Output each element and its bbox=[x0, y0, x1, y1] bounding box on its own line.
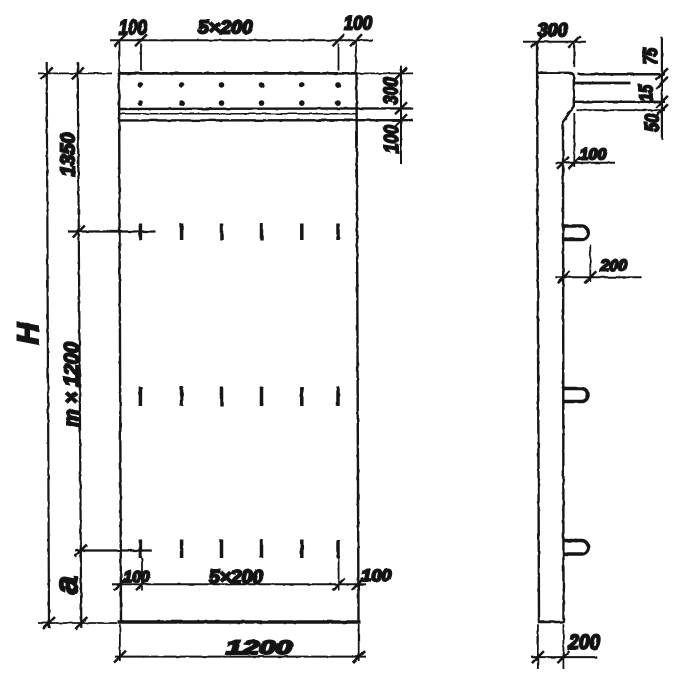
svg-text:200: 200 bbox=[599, 257, 628, 275]
svg-text:a: a bbox=[48, 576, 85, 594]
svg-text:1350: 1350 bbox=[58, 133, 80, 177]
svg-text:5×200: 5×200 bbox=[209, 567, 263, 587]
svg-text:300: 300 bbox=[538, 21, 568, 42]
svg-text:5×200: 5×200 bbox=[198, 18, 253, 38]
svg-text:100: 100 bbox=[580, 147, 607, 164]
svg-text:300: 300 bbox=[380, 77, 403, 104]
svg-text:H: H bbox=[12, 322, 45, 345]
svg-text:100: 100 bbox=[119, 17, 147, 40]
svg-text:75: 75 bbox=[641, 48, 662, 65]
svg-text:1200: 1200 bbox=[226, 638, 293, 659]
svg-text:100: 100 bbox=[361, 566, 392, 585]
svg-text:200: 200 bbox=[568, 631, 601, 654]
svg-text:m × 1200: m × 1200 bbox=[61, 342, 84, 427]
svg-text:50: 50 bbox=[642, 114, 664, 132]
svg-text:100: 100 bbox=[124, 569, 150, 586]
svg-text:100: 100 bbox=[380, 125, 403, 153]
svg-text:15: 15 bbox=[637, 85, 658, 102]
svg-text:100: 100 bbox=[344, 14, 373, 35]
